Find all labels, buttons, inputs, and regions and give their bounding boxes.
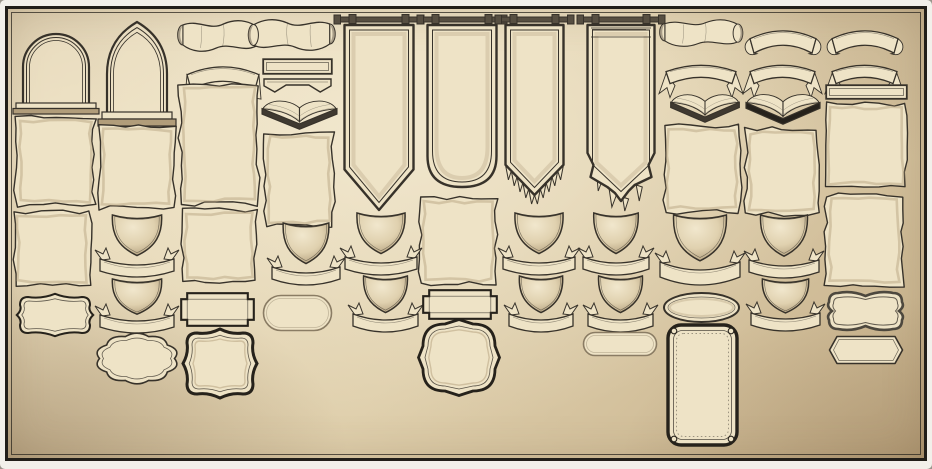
hanging-banner-ragged-drawing xyxy=(583,14,659,213)
ribbon-arch-forked-1-drawing xyxy=(660,56,742,86)
ribbon-arch-curled-1 xyxy=(744,20,822,56)
shield-banderole-10 xyxy=(656,208,744,288)
parchment-col1b xyxy=(12,210,92,287)
parchment-col10 xyxy=(744,127,820,216)
parchment-col6-drawing xyxy=(418,196,498,286)
parchment-col11a-drawing xyxy=(823,102,908,189)
open-book-3-drawing xyxy=(741,83,825,125)
shield-banderole-1 xyxy=(96,208,178,280)
plaque-hexagon-drawing xyxy=(827,334,905,366)
shield-banderole-2-drawing xyxy=(96,272,178,336)
shield-banderole-10-drawing xyxy=(656,208,744,288)
arch-window-round-drawing xyxy=(16,20,96,114)
fantasy-ui-asset-sheet xyxy=(0,0,932,469)
ribbon-arch-forked-2 xyxy=(744,56,821,86)
shield-banderole-3 xyxy=(268,216,344,288)
shield-banderole-9-drawing xyxy=(584,269,657,335)
hanging-banner-pointed-drawing xyxy=(340,14,418,215)
shield-banderole-4 xyxy=(341,206,421,278)
ribbon-arch-forked-3-drawing xyxy=(826,56,903,86)
shield-banderole-2 xyxy=(96,272,178,336)
plaque-ellipse-drawing xyxy=(662,291,741,324)
ribbon-arch-forked-3 xyxy=(826,56,903,86)
plaque-bracket xyxy=(17,294,93,336)
shield-banderole-8 xyxy=(579,206,653,278)
plaque-ellipse xyxy=(662,291,741,324)
scroll-banner-2 xyxy=(246,14,338,58)
plaque-scalloped-oval xyxy=(97,333,177,384)
plaque-card-tall xyxy=(666,323,739,447)
parchment-col3a-drawing xyxy=(178,82,260,206)
plaque-ornate-round xyxy=(419,320,499,395)
hanging-banner-rounded-drawing xyxy=(423,14,501,192)
parchment-col1b-drawing xyxy=(12,210,92,287)
parchment-col2-drawing xyxy=(97,124,176,210)
shield-banderole-11 xyxy=(745,208,823,281)
plaque-notched-1 xyxy=(179,291,256,328)
hanging-banner-rounded xyxy=(423,14,501,192)
arch-window-gothic xyxy=(100,18,174,126)
parchment-col2 xyxy=(97,124,176,210)
hanging-banner-fringed xyxy=(501,14,568,213)
scroll-banner-3-drawing xyxy=(657,15,745,53)
ribbon-arch-curled-2-drawing xyxy=(826,20,904,56)
plaque-pill-2-drawing xyxy=(582,331,658,357)
parchment-col11b-drawing xyxy=(824,193,904,288)
plaque-pill-1 xyxy=(262,294,333,332)
asset-elements-layer xyxy=(8,9,924,458)
strip-banner-plain-2-drawing xyxy=(825,84,908,100)
open-book-1-drawing xyxy=(257,90,342,130)
plaque-notched-2-drawing xyxy=(421,288,499,321)
shield-banderole-4-drawing xyxy=(341,206,421,278)
open-book-1 xyxy=(257,90,342,130)
plaque-bracket-drawing xyxy=(17,294,93,336)
hanging-banner-ragged xyxy=(583,14,659,213)
parchment-background xyxy=(5,6,927,461)
shield-banderole-12 xyxy=(747,272,824,334)
hanging-banner-fringed-drawing xyxy=(501,14,568,213)
parchment-col11b xyxy=(824,193,904,288)
arch-window-round xyxy=(16,20,96,114)
shield-banderole-5 xyxy=(349,269,422,335)
open-book-3 xyxy=(741,83,825,125)
shield-banderole-9 xyxy=(584,269,657,335)
parchment-col3b-drawing xyxy=(180,208,258,284)
parchment-col9 xyxy=(662,124,742,214)
plaque-wavy-rect xyxy=(826,290,905,332)
shield-banderole-5-drawing xyxy=(349,269,422,335)
parchment-col9-drawing xyxy=(662,124,742,214)
parchment-col4 xyxy=(263,131,335,228)
hanging-banner-pointed xyxy=(340,14,418,215)
parchment-col1a-drawing xyxy=(14,115,96,207)
parchment-col6 xyxy=(418,196,498,286)
open-book-2-drawing xyxy=(666,84,744,123)
ribbon-arch-forked-1 xyxy=(660,56,742,86)
ribbon-arch-curled-1-drawing xyxy=(744,20,822,56)
parchment-col3b xyxy=(180,208,258,284)
plaque-pill-2 xyxy=(582,331,658,357)
strip-banner-plain-1-drawing xyxy=(262,58,333,75)
shield-banderole-8-drawing xyxy=(579,206,653,278)
parchment-col4-drawing xyxy=(263,131,335,228)
shield-banderole-3-drawing xyxy=(268,216,344,288)
shield-banderole-6-drawing xyxy=(499,206,579,278)
plaque-ornate-square-drawing xyxy=(183,329,257,398)
plaque-notched-1-drawing xyxy=(179,291,256,328)
parchment-col3a xyxy=(178,82,260,206)
arch-window-gothic-drawing xyxy=(100,18,174,126)
ribbon-arch-curled-2 xyxy=(826,20,904,56)
strip-banner-plain-1 xyxy=(262,58,333,75)
ribbon-arch-forked-2-drawing xyxy=(744,56,821,86)
plaque-ornate-round-drawing xyxy=(419,320,499,395)
scroll-banner-3 xyxy=(657,15,745,53)
plaque-scalloped-oval-drawing xyxy=(97,333,177,384)
open-book-2 xyxy=(666,84,744,123)
parchment-col11a xyxy=(823,102,908,189)
plaque-notched-2 xyxy=(421,288,499,321)
shield-banderole-7-drawing xyxy=(505,269,577,335)
shield-banderole-1-drawing xyxy=(96,208,178,280)
strip-banner-plain-2 xyxy=(825,84,908,100)
parchment-col1a xyxy=(14,115,96,207)
plaque-pill-1-drawing xyxy=(262,294,333,332)
plaque-ornate-square xyxy=(183,329,257,398)
shield-banderole-12-drawing xyxy=(747,272,824,334)
plaque-hexagon xyxy=(827,334,905,366)
parchment-col10-drawing xyxy=(744,127,820,216)
shield-banderole-7 xyxy=(505,269,577,335)
shield-banderole-6 xyxy=(499,206,579,278)
plaque-wavy-rect-drawing xyxy=(826,290,905,332)
shield-banderole-11-drawing xyxy=(745,208,823,281)
plaque-card-tall-drawing xyxy=(666,323,739,447)
scroll-banner-2-drawing xyxy=(246,14,338,58)
